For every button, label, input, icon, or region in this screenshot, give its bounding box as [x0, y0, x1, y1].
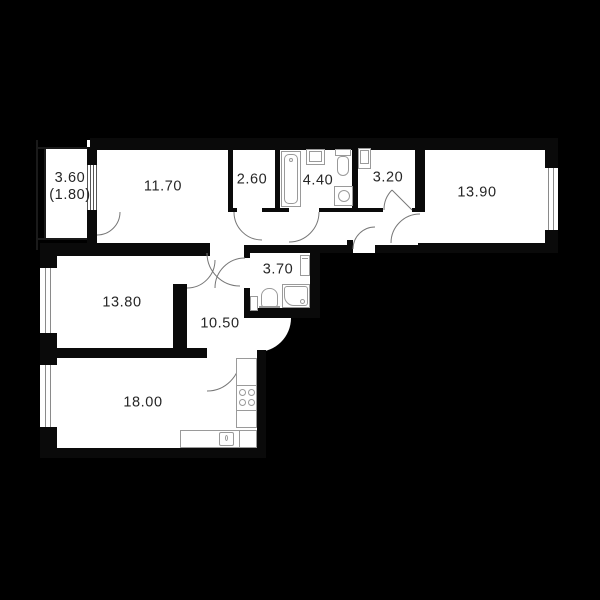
wall-entrance-left [320, 245, 347, 253]
floor-corridor-curved-corner [257, 318, 291, 352]
hall-cabinet-inner [360, 150, 369, 164]
balcony-wall-left [44, 147, 46, 240]
water-heater-line [302, 258, 308, 259]
wall-outer-bottom [40, 448, 266, 458]
wall-div-1170-260 [228, 150, 233, 212]
wall-kitchen-top [57, 348, 207, 358]
wall-rooms-bottom-d [412, 208, 425, 212]
room-area-wardrobe: 2.60 [237, 172, 268, 189]
toilet-2-base [259, 306, 280, 308]
wall-370-top [244, 245, 320, 253]
window-bedroom-left [41, 268, 56, 333]
wash-basin-inner [309, 151, 322, 162]
wall-rooms-bottom-b [262, 208, 289, 212]
room-area-balcony: 3.60 (1.80) [49, 170, 90, 204]
wall-1380-right [173, 284, 187, 358]
wall-kitchen-right [257, 350, 266, 458]
balcony-pier-bottom [87, 210, 97, 243]
wall-outer-left-a [40, 250, 57, 268]
room-area-bathroom: 4.40 [303, 173, 334, 190]
balcony-tick-bottom [36, 238, 44, 240]
wall-bedroom-right-bottom [418, 243, 558, 253]
kitchen-sink-faucet [225, 435, 228, 441]
balcony-area-secondary: (1.80) [49, 187, 90, 203]
room-area-corridor: 10.50 [200, 316, 239, 333]
wall-rooms-bottom-a [233, 208, 237, 212]
wall-1170-bottom [40, 243, 210, 256]
stove-burner-2 [248, 389, 255, 396]
stove-burner-1 [239, 389, 246, 396]
room-area-shower-room: 3.70 [263, 262, 294, 279]
wall-370-left-upper [244, 245, 250, 258]
toilet-tank [335, 149, 351, 156]
balcony-outer-line [36, 140, 38, 250]
window-kitchen [41, 365, 56, 427]
room-area-bedroom-left: 13.80 [102, 295, 141, 312]
window-bedroom-right [544, 168, 558, 230]
room-area-entry-hall: 3.20 [373, 170, 404, 187]
wall-rooms-bottom-c [319, 208, 383, 212]
washing-machine-drum [338, 190, 350, 202]
stove-burner-3 [239, 399, 246, 406]
balcony-tick-top [36, 147, 44, 149]
room-area-bedroom-top: 11.70 [144, 179, 182, 196]
wall-div-260-440 [275, 150, 280, 212]
bathtub-drain [289, 158, 293, 162]
counter-divider-1 [236, 385, 257, 386]
wall-outer-right-upper [545, 150, 558, 168]
toilet-2-bowl [261, 288, 278, 308]
wash-basin-2 [250, 296, 258, 311]
shower-drain [300, 299, 305, 304]
wall-entrance-right [375, 245, 420, 253]
room-area-bedroom-right: 13.90 [457, 185, 496, 202]
stove-burner-4 [248, 399, 255, 406]
kitchen-counter-divider [239, 430, 240, 448]
wall-div-320-1390 [415, 140, 425, 212]
toilet-bowl [337, 156, 349, 176]
floor-mid-band [40, 244, 257, 358]
room-area-kitchen-living: 18.00 [123, 395, 162, 412]
floor-plan: 3.60 (1.80) 11.70 2.60 4.40 3.20 13.90 3… [0, 0, 600, 600]
wall-outer-left-b [40, 333, 57, 365]
counter-divider-2 [236, 410, 257, 411]
entrance-door-hinge-block [347, 240, 353, 253]
balcony-area-main: 3.60 [55, 170, 86, 186]
